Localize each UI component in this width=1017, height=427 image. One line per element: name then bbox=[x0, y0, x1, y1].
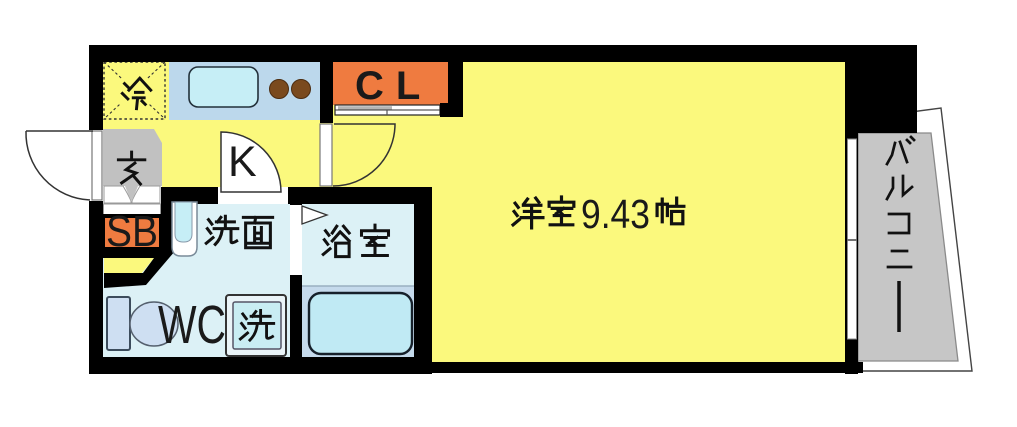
svg-text:K: K bbox=[228, 138, 257, 186]
svg-text:SB: SB bbox=[106, 207, 158, 256]
svg-text:CL: CL bbox=[355, 64, 432, 108]
svg-text:9.43: 9.43 bbox=[581, 191, 650, 237]
svg-text:WC: WC bbox=[158, 295, 226, 355]
